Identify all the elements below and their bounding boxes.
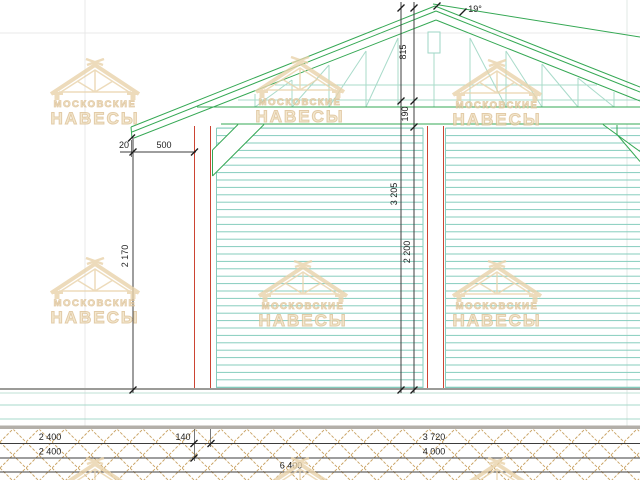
- bottom-dim-label: 2 400: [39, 447, 62, 457]
- beam-body: [197, 107, 640, 124]
- bottom-dim-label: 4 000: [423, 447, 446, 457]
- post-height-label: 2 170: [120, 245, 130, 268]
- bottom-dim-label: 6 400: [280, 461, 303, 471]
- foundation-band: [0, 426, 640, 430]
- cad-viewport: 19° 815 190 3 205 2 200 2 170 20 500 2 4…: [0, 0, 640, 480]
- siding-left-bay: [217, 128, 424, 389]
- bottom-dim-label: 140: [175, 432, 190, 442]
- clear-height-label: 2 200: [402, 241, 412, 264]
- bottom-dim-label: 3 720: [423, 432, 446, 442]
- siding-right-bay: [446, 128, 640, 389]
- elevation-drawing: 19° 815 190 3 205 2 200 2 170 20 500 2 4…: [0, 0, 640, 480]
- ridge-height-label: 815: [398, 44, 408, 59]
- bottom-dim-label: 2 400: [39, 432, 62, 442]
- roof-angle-label: 19°: [468, 4, 482, 14]
- total-height-label: 3 205: [389, 183, 399, 206]
- overhang-label: 500: [156, 140, 171, 150]
- beam-depth-label: 190: [400, 106, 410, 121]
- eave-offset-label: 20: [119, 140, 129, 150]
- ground: [0, 389, 640, 480]
